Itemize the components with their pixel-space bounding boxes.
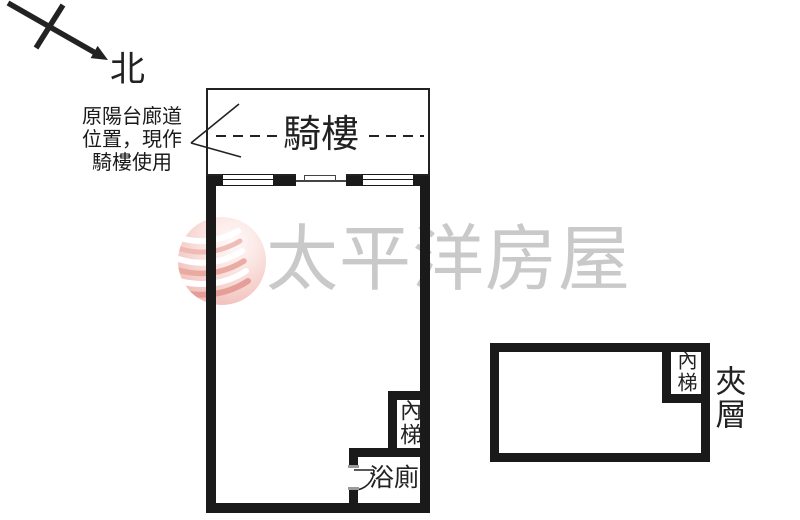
- main-wall-right: [420, 176, 430, 513]
- annotation-text: 原陽台廊道 位置，現作 騎樓使用: [73, 106, 191, 175]
- window: [362, 174, 414, 186]
- mezzanine-stair-wall-bottom: [662, 394, 710, 403]
- arcade-label: 騎樓: [280, 116, 362, 156]
- bathroom-label: 浴廁: [369, 465, 419, 491]
- window-midline: [223, 179, 273, 180]
- annotation-line: 騎樓使用: [73, 152, 191, 175]
- main-wall-left: [206, 176, 216, 513]
- annotation-line: 位置，現作: [73, 129, 191, 152]
- window: [222, 174, 274, 186]
- north-arrow-icon: [8, 3, 108, 60]
- door-jamb: [348, 465, 359, 468]
- bathroom-wall-top: [349, 448, 430, 457]
- north-label: 北: [110, 52, 145, 89]
- main-wall-bottom: [206, 503, 430, 513]
- floor-plan: 太平洋房屋 北 原陽台廊道 位置，現作 騎樓使用 騎樓: [0, 0, 800, 520]
- sliding-door-panel: [304, 175, 336, 181]
- mezzanine-stairs-label: 內梯: [674, 350, 695, 394]
- window-midline: [363, 179, 413, 180]
- stair-wall-left: [388, 391, 397, 448]
- annotation-line: 原陽台廊道: [73, 106, 191, 129]
- door-jamb: [348, 487, 359, 490]
- bathroom-wall-left-lower: [349, 490, 358, 503]
- bathroom-wall-left-upper: [349, 457, 358, 465]
- stairs-label: 內梯: [398, 399, 421, 447]
- mezzanine-label: 夾層: [711, 365, 744, 431]
